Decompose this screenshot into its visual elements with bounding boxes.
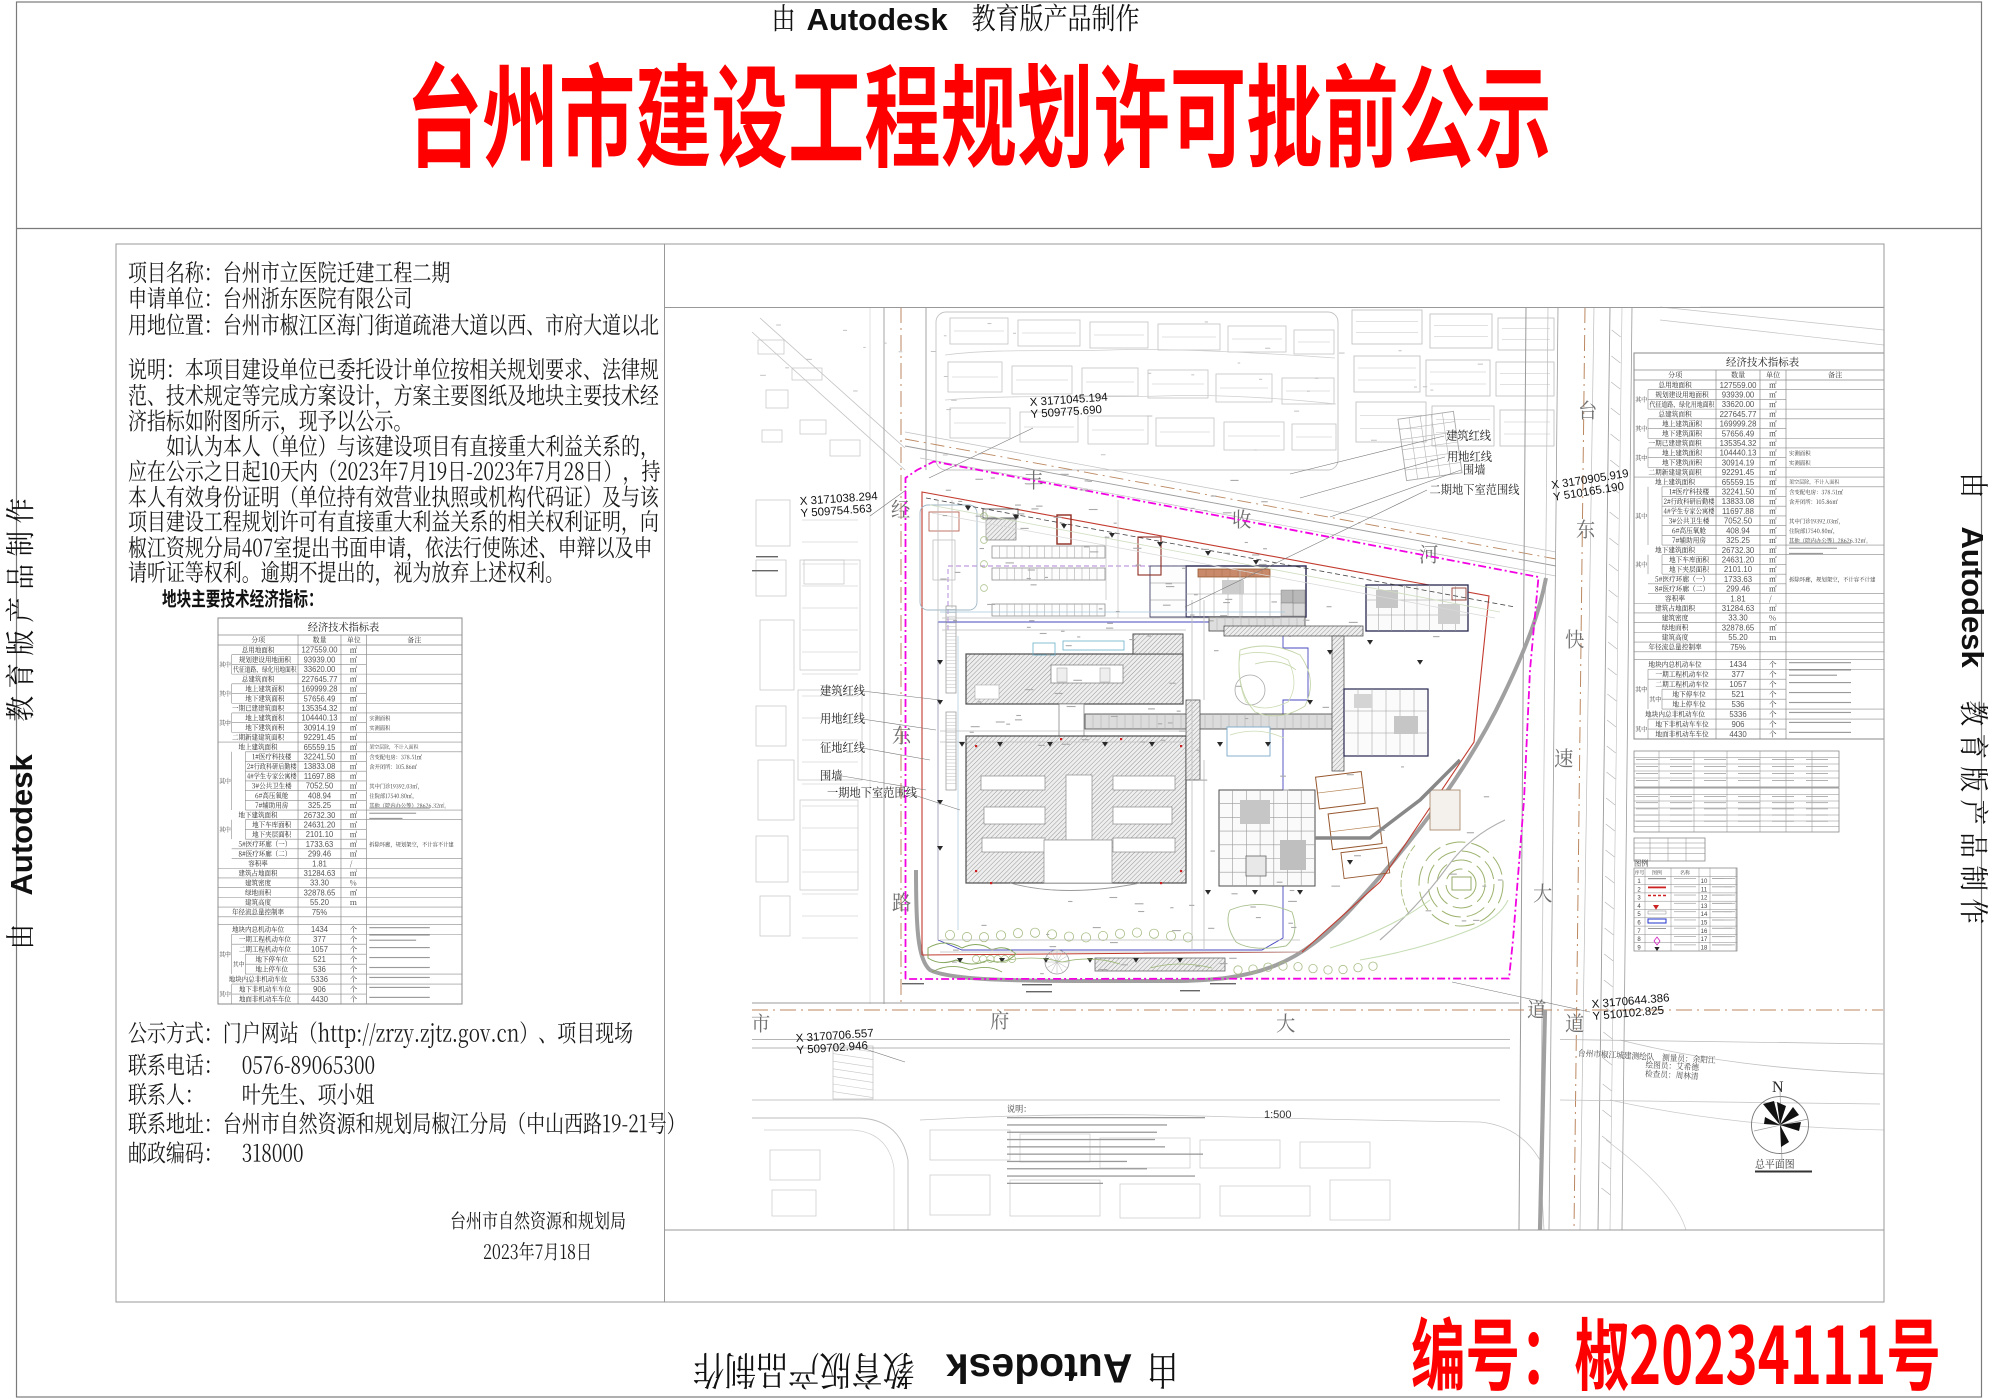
svg-text:12: 12 (1701, 896, 1708, 902)
svg-text:18: 18 (1701, 945, 1708, 951)
svg-text:14: 14 (1701, 912, 1708, 918)
svg-text:16: 16 (1701, 929, 1708, 935)
svg-text:13: 13 (1701, 904, 1708, 910)
svg-text:17: 17 (1701, 937, 1708, 943)
svg-text:1:500: 1:500 (1264, 1109, 1292, 1121)
svg-text:N: N (1772, 1079, 1784, 1096)
svg-text:11: 11 (1701, 887, 1708, 893)
svg-text:15: 15 (1701, 921, 1708, 927)
svg-text:10: 10 (1701, 879, 1708, 885)
